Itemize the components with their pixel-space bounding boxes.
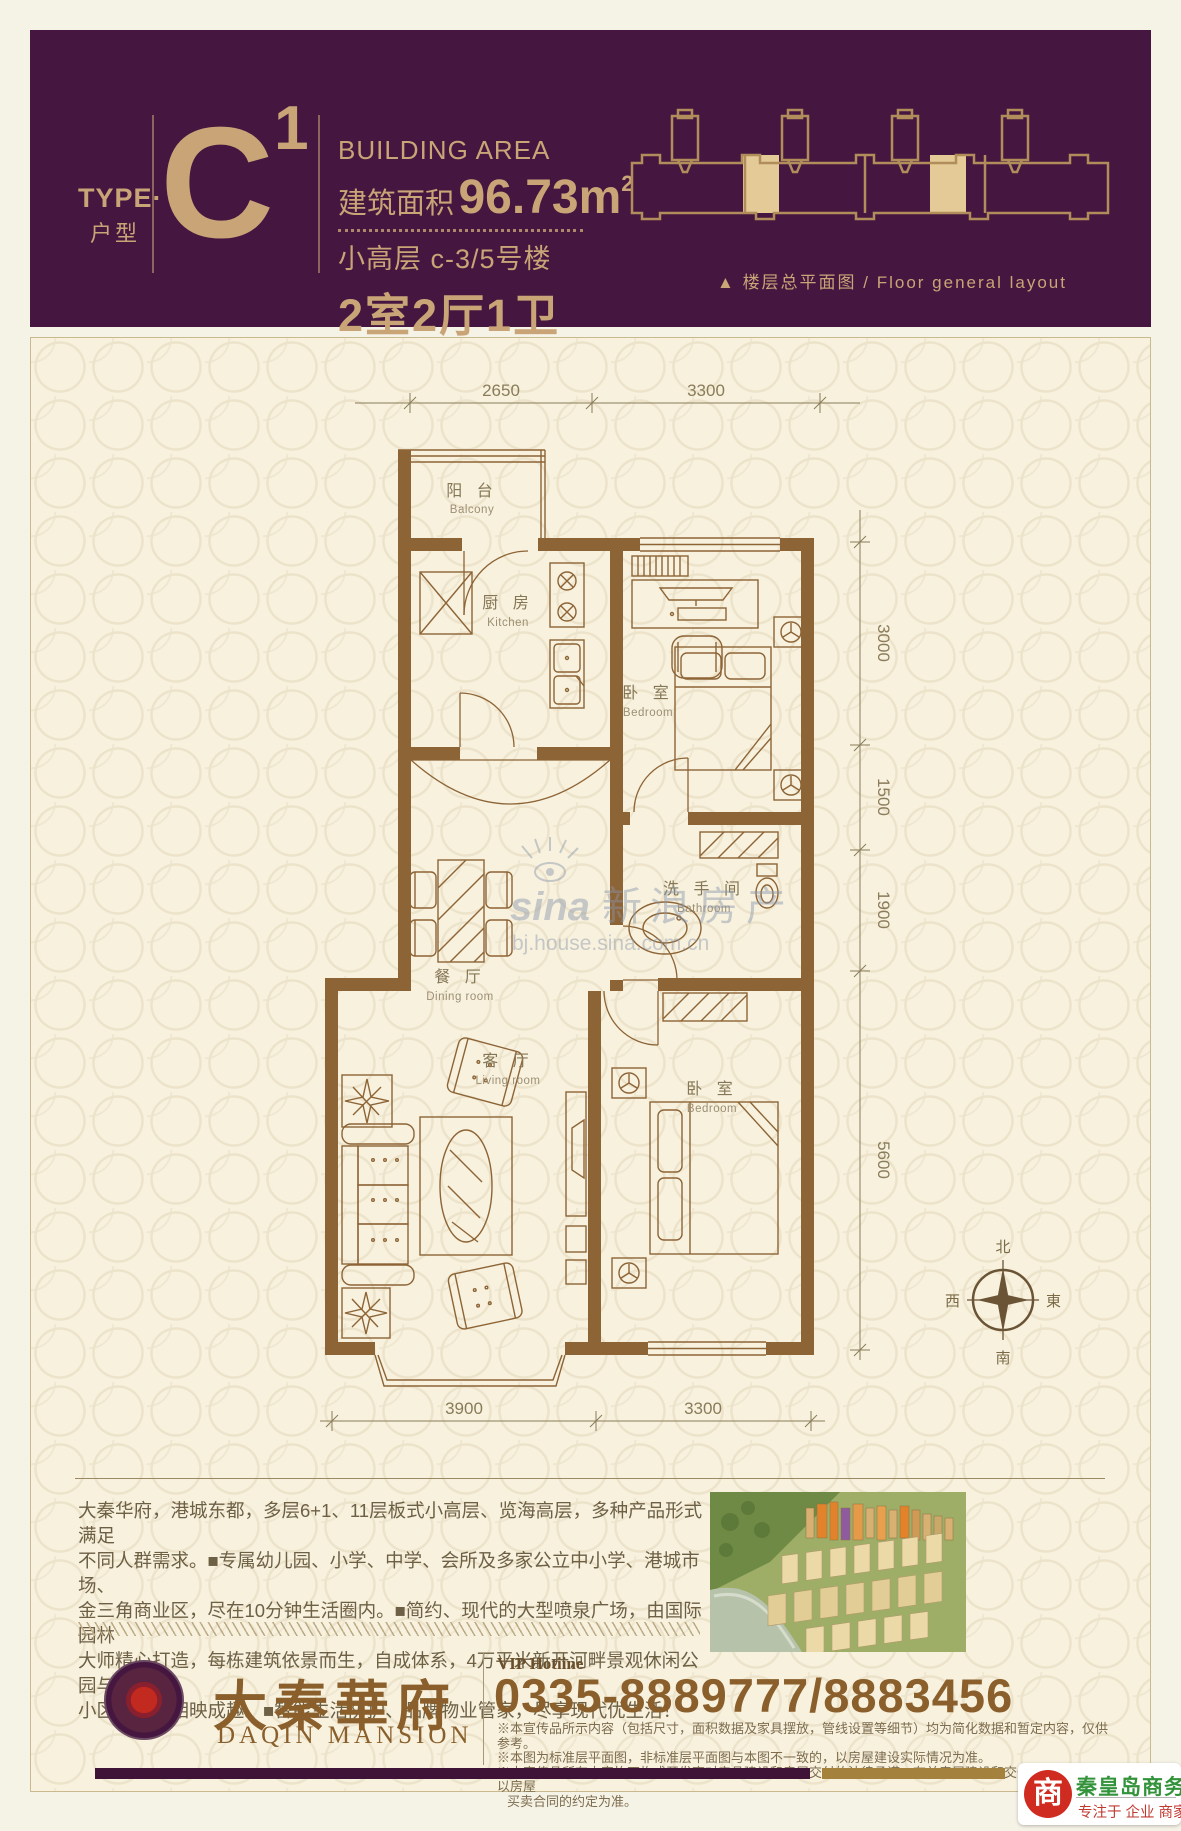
svg-text:5600: 5600 xyxy=(874,1141,893,1179)
armchair-top xyxy=(446,1036,524,1107)
plant-2 xyxy=(342,1288,390,1338)
svg-text:2650: 2650 xyxy=(482,381,520,400)
nightstand-fan-3 xyxy=(612,1068,646,1098)
floor-plan: 2650 3300 3000 1500 1900 5600 3900 3300 xyxy=(280,380,1160,1460)
floor-general-layout-diagram xyxy=(620,108,1120,238)
triangle-icon: ▲ xyxy=(717,273,736,292)
desk xyxy=(632,580,758,628)
svg-text:阳 台: 阳 台 xyxy=(446,482,497,500)
svg-text:3300: 3300 xyxy=(687,381,725,400)
brand-emblem xyxy=(104,1660,184,1740)
svg-text:3300: 3300 xyxy=(684,1399,722,1418)
hotline-number: 0335-8889777/8883456 xyxy=(494,1668,1013,1723)
layout-caption: ▲ 楼层总平面图 / Floor general layout xyxy=(717,268,1067,293)
tv-stand xyxy=(566,1092,586,1284)
desk-chair xyxy=(672,636,722,678)
rooms-summary: 2室2厅1卫 xyxy=(338,279,608,344)
dotted-separator xyxy=(338,229,583,232)
svg-text:餐 厅: 餐 厅 xyxy=(434,968,485,986)
plant-1 xyxy=(342,1075,392,1127)
brand-name-en: DAQIN MANSION xyxy=(217,1722,472,1750)
aerial-rendering-image xyxy=(710,1492,966,1652)
svg-text:厨 房: 厨 房 xyxy=(482,594,533,612)
svg-text:3900: 3900 xyxy=(445,1399,483,1418)
hatch-band xyxy=(78,1622,700,1636)
sofa xyxy=(342,1124,414,1285)
svg-text:sina: sina xyxy=(510,885,590,929)
badge-glyph-icon: 商 xyxy=(1024,1770,1072,1818)
svg-text:南: 南 xyxy=(995,1350,1010,1367)
svg-text:Kitchen: Kitchen xyxy=(487,617,529,629)
badge-rule xyxy=(1076,1797,1176,1798)
floor-info: 小高层 c-3/5号楼 xyxy=(338,237,608,276)
sina-watermark: sina 新浪房产 bj.house.sina.com.cn xyxy=(510,837,794,955)
armchair-bottom xyxy=(447,1262,523,1330)
description-line: 不同人群需求。■专属幼儿园、小学、中学、会所及多家公立中小学、港城市场、 xyxy=(78,1548,710,1598)
coffee-table xyxy=(420,1117,512,1255)
svg-text:卧 室: 卧 室 xyxy=(622,684,673,702)
svg-text:東: 東 xyxy=(1046,1293,1061,1310)
footer-bar-gold xyxy=(822,1768,1005,1779)
header-divider-right xyxy=(318,115,320,273)
building-area-label: BUILDING AREA xyxy=(338,135,608,166)
svg-text:新浪房产: 新浪房产 xyxy=(602,885,794,929)
compass-icon: 北 南 西 東 xyxy=(945,1239,1061,1367)
bath-counter xyxy=(700,832,778,858)
wardrobe xyxy=(663,993,747,1021)
badge-tagline: 专注于 企业 商家 xyxy=(1078,1801,1181,1822)
svg-text:1500: 1500 xyxy=(874,778,893,816)
type-label-en: TYPE· xyxy=(78,183,163,214)
stove xyxy=(550,563,584,627)
footer-bar-purple xyxy=(95,1768,810,1779)
svg-text:客 厅: 客 厅 xyxy=(482,1052,533,1070)
svg-text:1900: 1900 xyxy=(874,891,893,929)
description-line: 大秦华府，港城东都，多层6+1、11层板式小高层、览海高层，多种产品形式满足 xyxy=(78,1498,710,1548)
type-label-cn: 户型 xyxy=(90,216,140,248)
unit-code: C1 xyxy=(160,98,309,262)
radiator xyxy=(632,556,688,576)
nightstand-fan-4 xyxy=(612,1258,646,1288)
svg-text:Dining room: Dining room xyxy=(426,991,494,1003)
bed-2 xyxy=(650,1102,778,1254)
svg-text:Balcony: Balcony xyxy=(450,504,494,516)
svg-text:Bedroom: Bedroom xyxy=(623,707,673,719)
disclaimer-line: ※本宣传品所示内容（包括尺寸，面积数据及家具摆放，管线设置等细节）均为简化数据和… xyxy=(497,1722,1111,1751)
header-info-column: BUILDING AREA 建筑面积 96.73m2 小高层 c-3/5号楼 2… xyxy=(338,135,608,344)
kitchen-sink xyxy=(550,640,584,708)
footer-divider xyxy=(75,1478,1105,1479)
building-outline xyxy=(632,110,1108,219)
dining-chairs xyxy=(410,872,512,956)
svg-text:卧 室: 卧 室 xyxy=(686,1080,737,1098)
header-banner: TYPE· 户型 C1 BUILDING AREA 建筑面积 96.73m2 小… xyxy=(30,30,1151,327)
header-divider-left xyxy=(152,115,154,273)
svg-text:北: 北 xyxy=(995,1239,1010,1256)
svg-text:bj.house.sina.com.cn: bj.house.sina.com.cn xyxy=(512,932,709,955)
disclaimer-line: ※本图为标准层平面图，非标准层平面图与本图不一致的，以房屋建设实际情况为准。 xyxy=(497,1751,1111,1766)
dining-table xyxy=(438,860,484,962)
bed-1 xyxy=(675,647,771,770)
site-badge: 商 秦皇岛商务网 专注于 企业 商家 xyxy=(1018,1763,1181,1825)
building-area-value: 建筑面积 96.73m2 xyxy=(338,170,608,225)
footer-vertical-divider xyxy=(483,1653,484,1765)
svg-text:Bedroom: Bedroom xyxy=(687,1103,737,1115)
svg-text:Living room: Living room xyxy=(476,1075,541,1087)
svg-text:3000: 3000 xyxy=(874,624,893,662)
svg-text:西: 西 xyxy=(945,1293,960,1310)
